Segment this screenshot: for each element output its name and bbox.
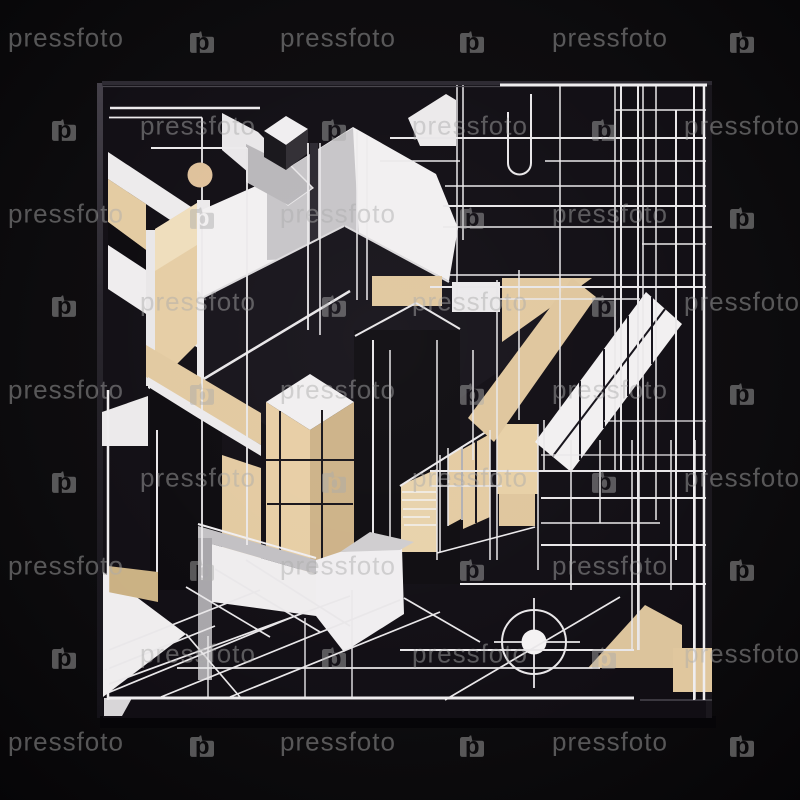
svg-text:pressfoto: pressfoto <box>684 287 800 317</box>
svg-text:pressfoto: pressfoto <box>280 375 396 405</box>
svg-text:pressfoto: pressfoto <box>140 287 256 317</box>
svg-text:pressfoto: pressfoto <box>552 23 668 53</box>
svg-text:pressfoto: pressfoto <box>8 727 124 757</box>
svg-text:pressfoto: pressfoto <box>684 639 800 669</box>
svg-text:pressfoto: pressfoto <box>412 639 528 669</box>
svg-text:pressfoto: pressfoto <box>8 551 124 581</box>
svg-text:pressfoto: pressfoto <box>8 375 124 405</box>
svg-text:pressfoto: pressfoto <box>552 551 668 581</box>
svg-text:pressfoto: pressfoto <box>140 639 256 669</box>
svg-text:pressfoto: pressfoto <box>280 551 396 581</box>
svg-text:pressfoto: pressfoto <box>280 199 396 229</box>
svg-text:pressfoto: pressfoto <box>412 111 528 141</box>
svg-text:pressfoto: pressfoto <box>140 111 256 141</box>
svg-text:pressfoto: pressfoto <box>140 463 256 493</box>
svg-text:pressfoto: pressfoto <box>412 287 528 317</box>
svg-text:pressfoto: pressfoto <box>8 23 124 53</box>
svg-text:pressfoto: pressfoto <box>552 375 668 405</box>
svg-text:pressfoto: pressfoto <box>280 727 396 757</box>
svg-text:pressfoto: pressfoto <box>684 463 800 493</box>
svg-text:pressfoto: pressfoto <box>552 727 668 757</box>
svg-text:pressfoto: pressfoto <box>684 111 800 141</box>
svg-text:pressfoto: pressfoto <box>552 199 668 229</box>
svg-text:pressfoto: pressfoto <box>280 23 396 53</box>
svg-text:pressfoto: pressfoto <box>8 199 124 229</box>
svg-text:pressfoto: pressfoto <box>412 463 528 493</box>
